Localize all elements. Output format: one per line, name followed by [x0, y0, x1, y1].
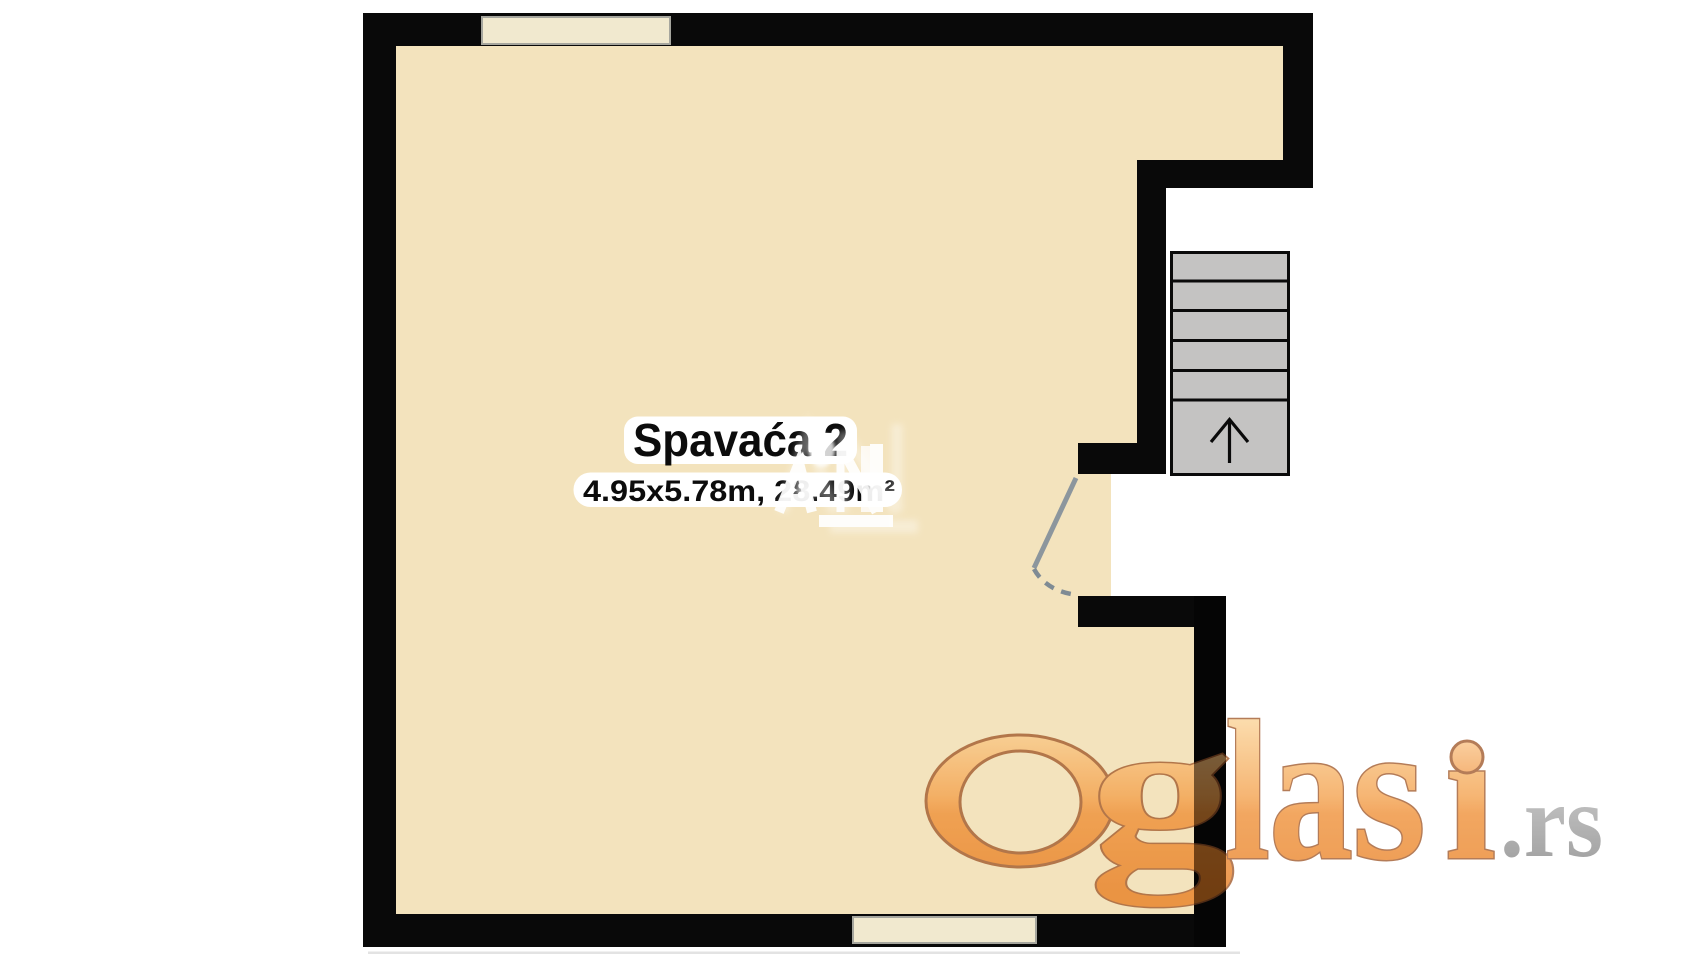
svg-text:s: s — [1352, 681, 1426, 902]
svg-text:a: a — [1269, 681, 1353, 902]
svg-text:.rs: .rs — [1500, 764, 1603, 879]
svg-text:ı: ı — [1445, 690, 1496, 899]
svg-text:l: l — [1225, 681, 1270, 902]
